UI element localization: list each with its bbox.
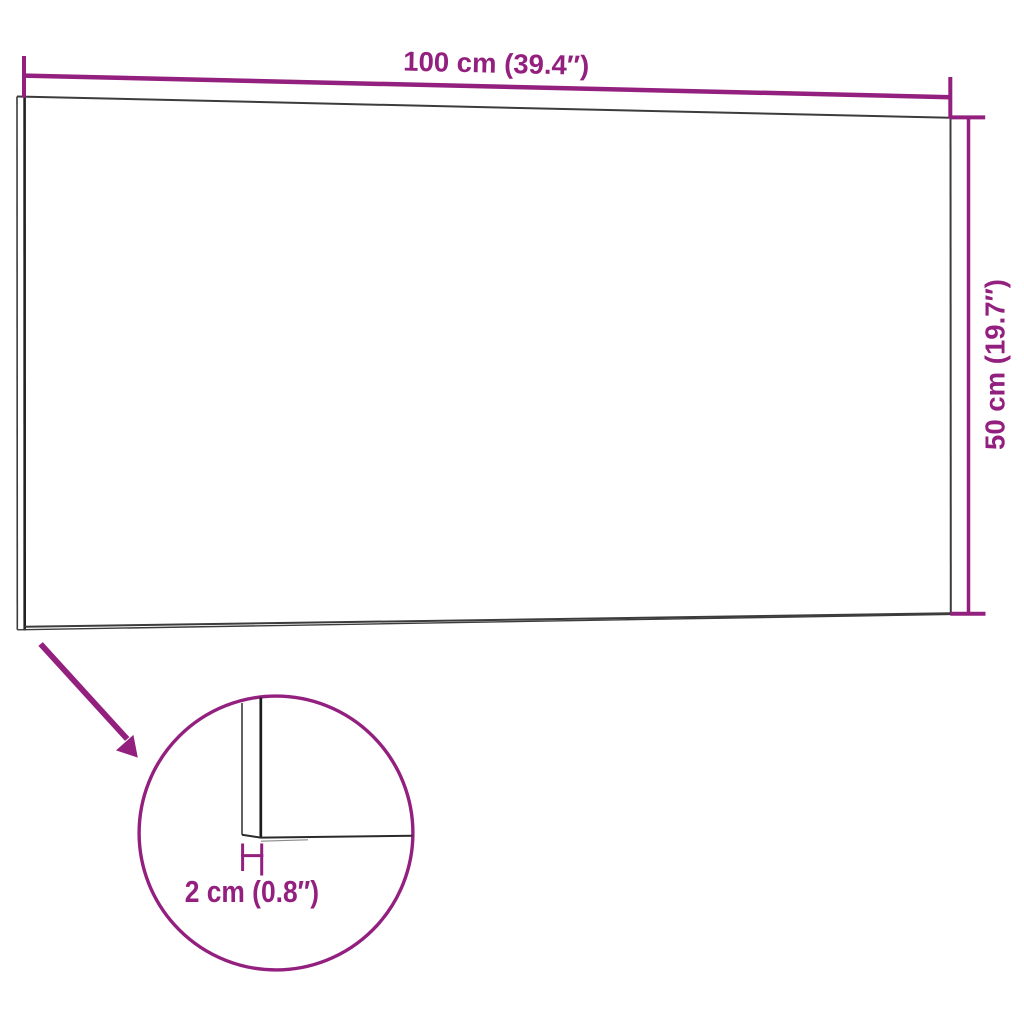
svg-text:2 cm (0.8″): 2 cm (0.8″) [185, 874, 319, 909]
svg-text:100 cm (39.4″): 100 cm (39.4″) [403, 46, 590, 81]
svg-text:50 cm (19.7″): 50 cm (19.7″) [980, 279, 1011, 450]
